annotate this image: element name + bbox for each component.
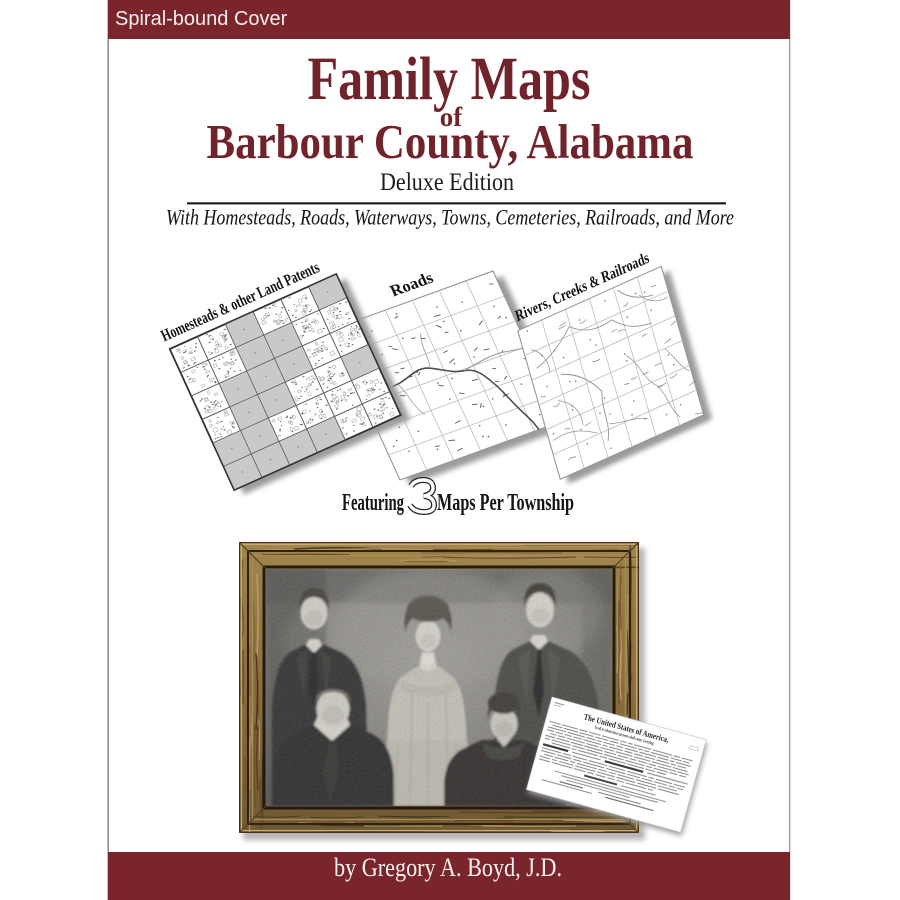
svg-text:Spiral-bound Cover: Spiral-bound Cover [115, 8, 288, 30]
svg-text:Barbour County, Alabama: Barbour County, Alabama [207, 114, 694, 169]
svg-text:Maps Per Township: Maps Per Township [437, 490, 574, 516]
svg-text:Featuring: Featuring [342, 490, 404, 516]
svg-text:by Gregory A. Boyd, J.D.: by Gregory A. Boyd, J.D. [334, 853, 562, 882]
svg-text:With Homesteads, Roads, Waterw: With Homesteads, Roads, Waterways, Towns… [166, 205, 734, 230]
svg-text:Deluxe Edition: Deluxe Edition [380, 169, 514, 196]
